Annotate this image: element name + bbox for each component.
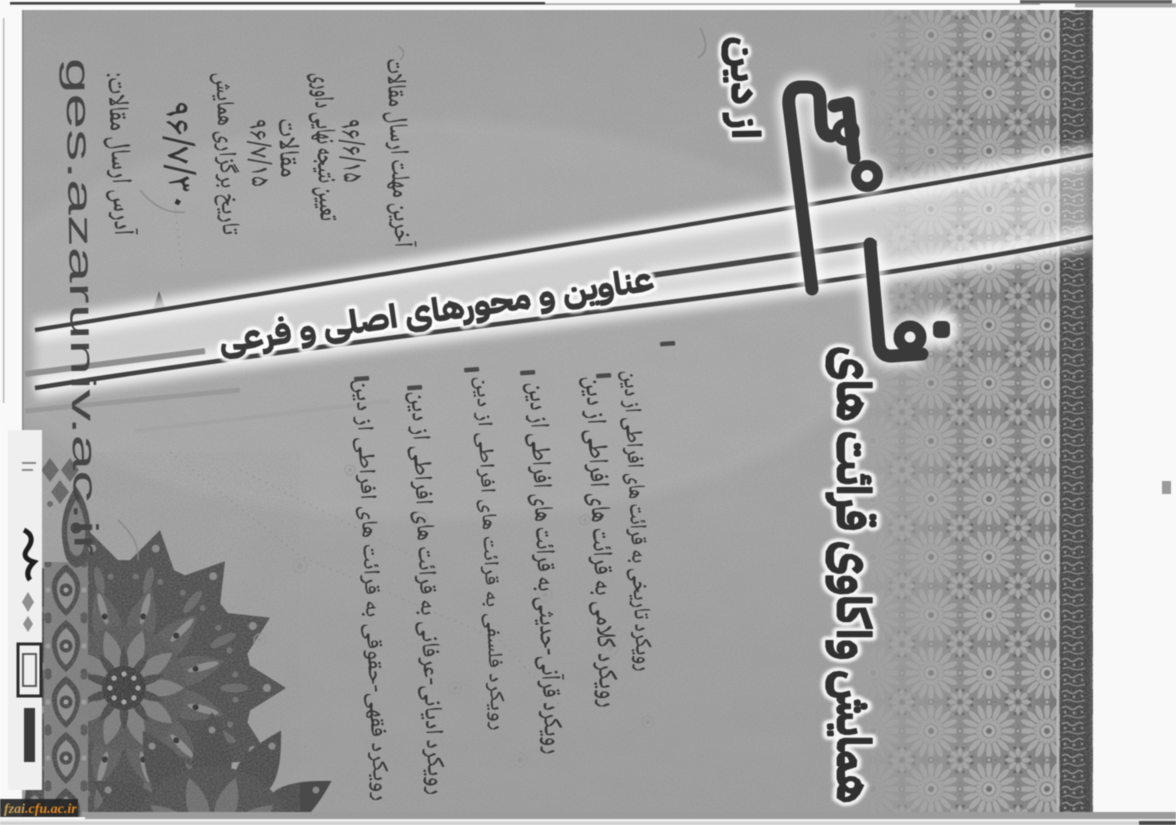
svg-text:fzai.cfu.ac.ir: fzai.cfu.ac.ir [4, 802, 77, 817]
